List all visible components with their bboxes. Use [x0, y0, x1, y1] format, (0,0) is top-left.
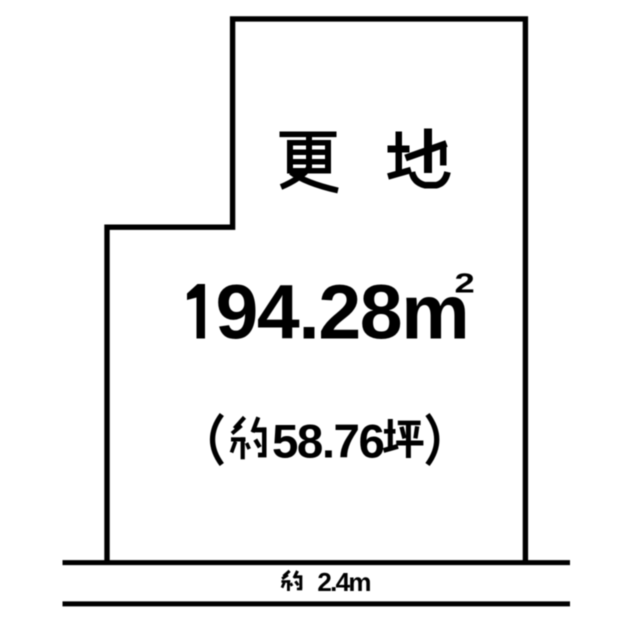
- svg-text:2.4m: 2.4m: [317, 567, 370, 597]
- svg-text:2: 2: [455, 267, 475, 298]
- svg-text:94.28m: 94.28m: [216, 270, 469, 356]
- svg-text:58.76: 58.76: [272, 415, 383, 468]
